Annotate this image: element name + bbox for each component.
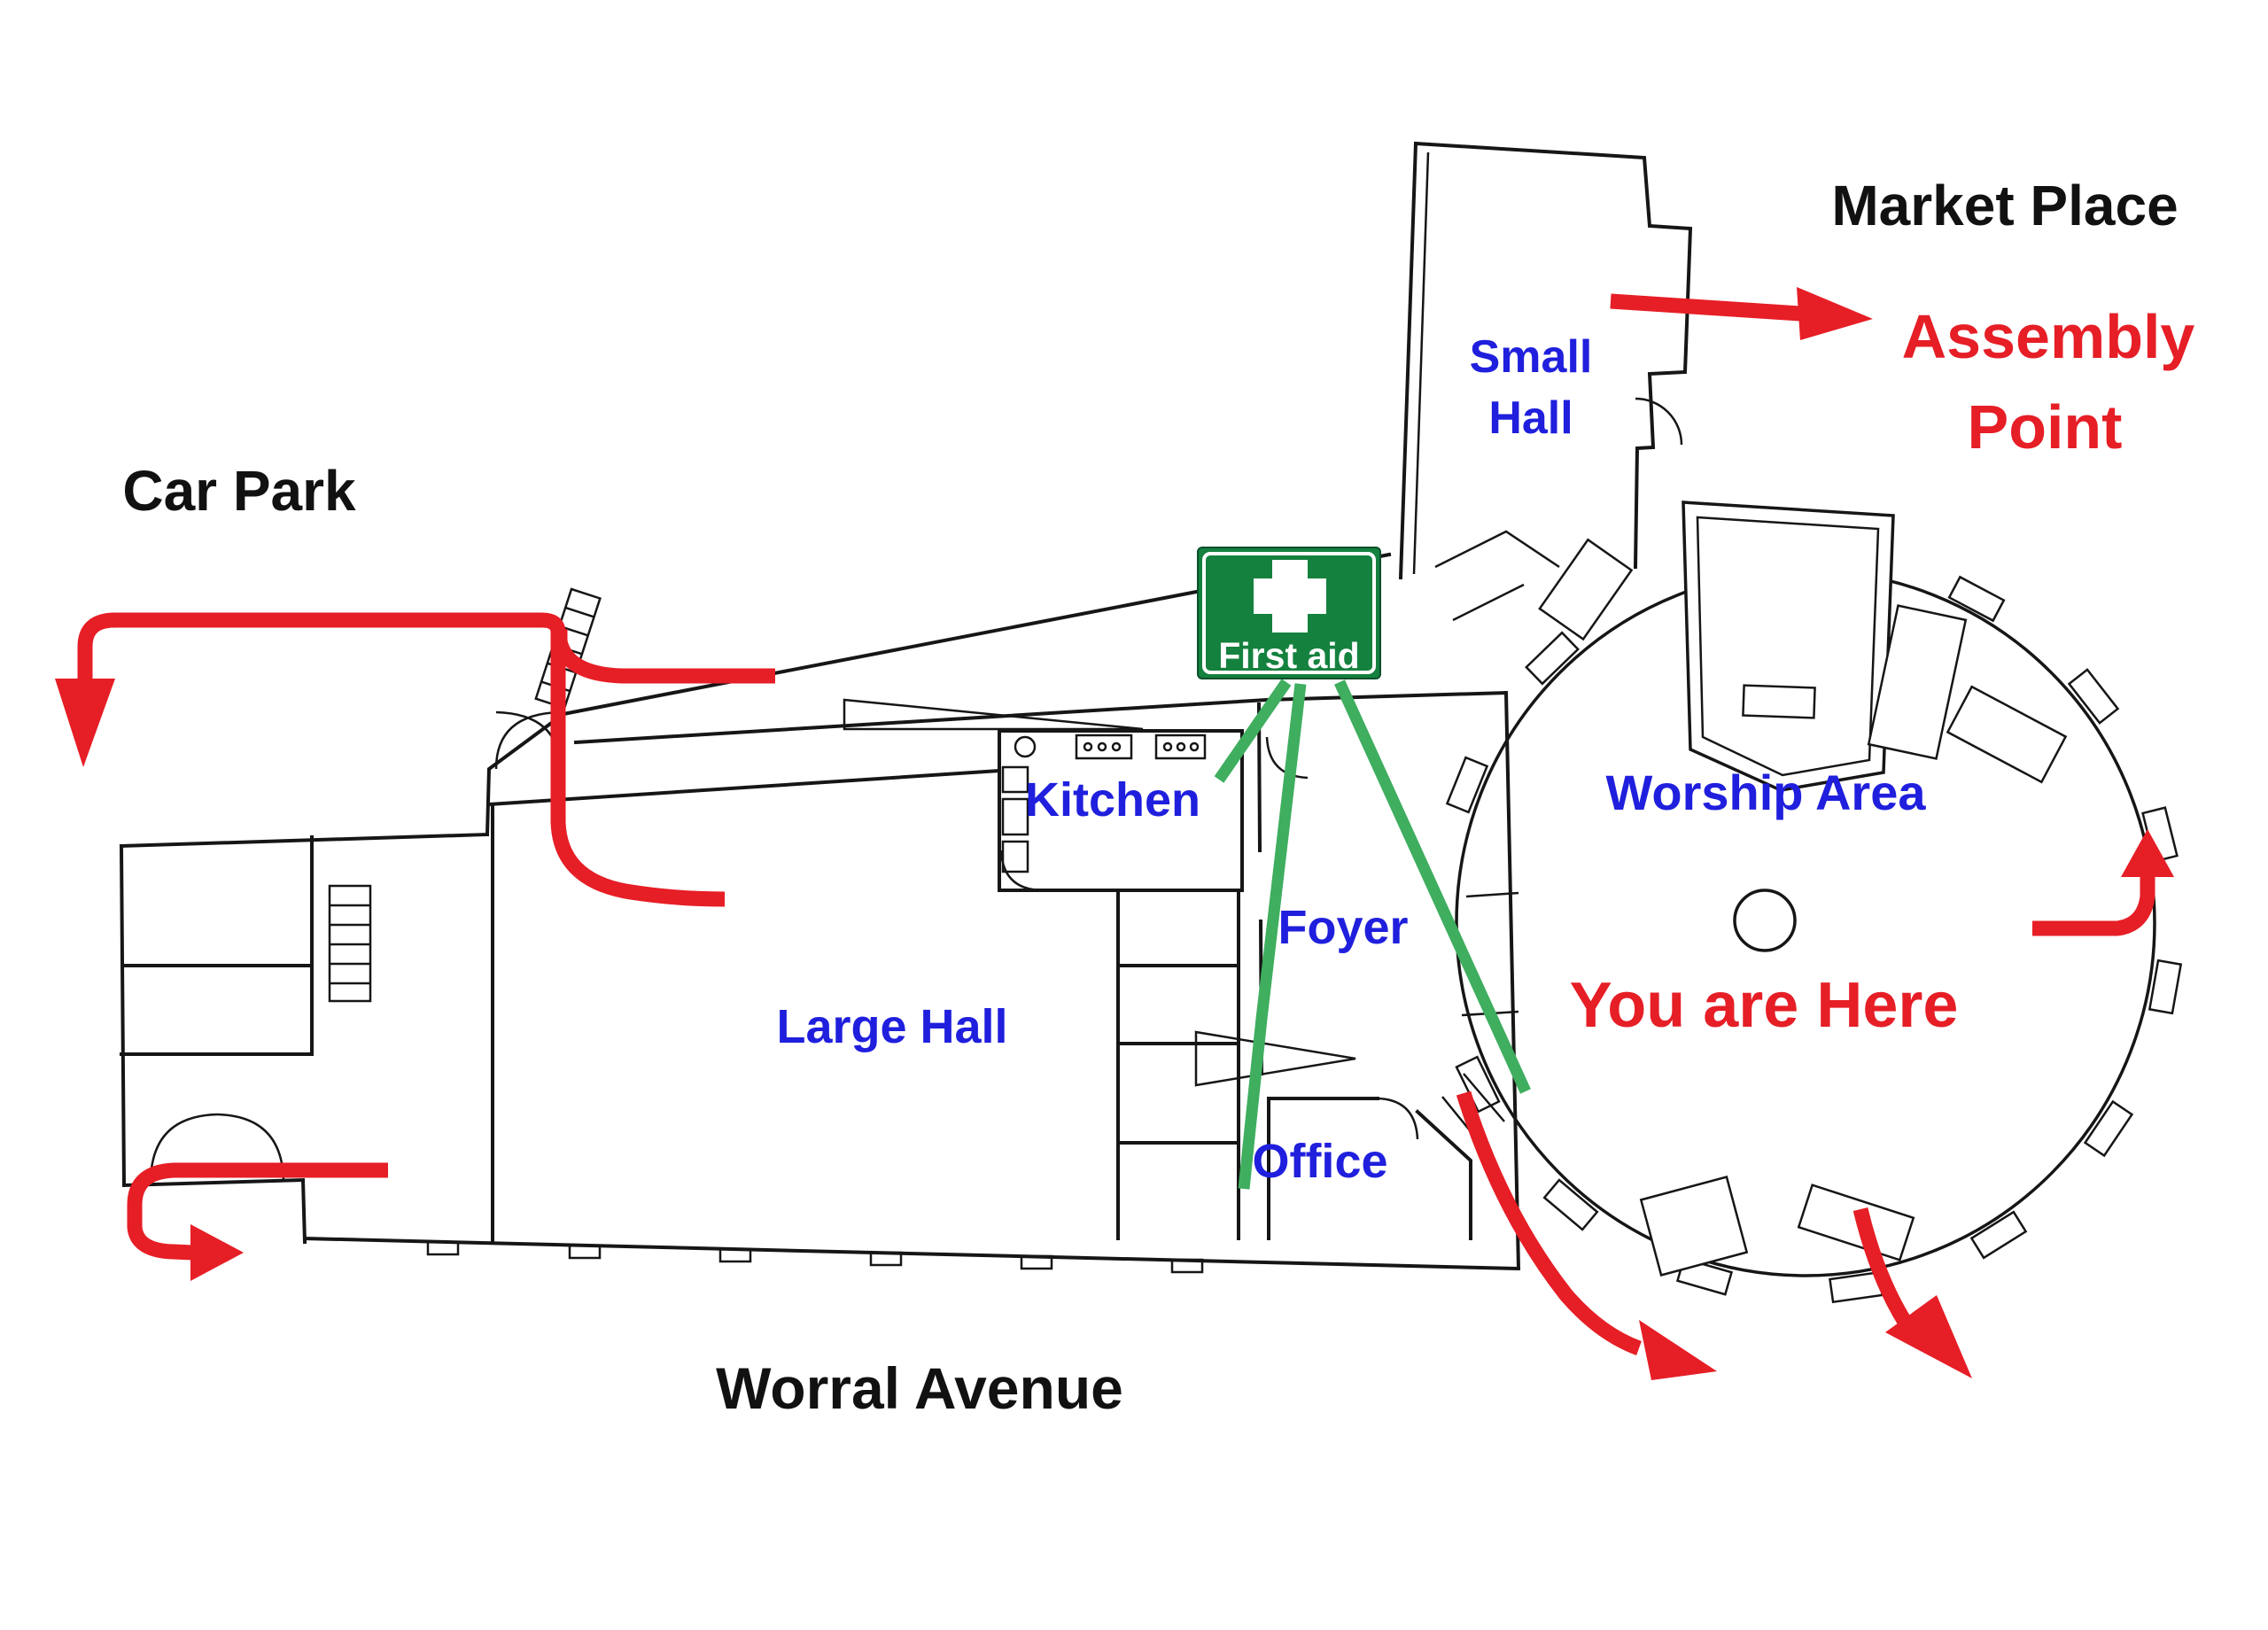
label-office: Office bbox=[1252, 1135, 1387, 1188]
arrowhead-assembly bbox=[1797, 287, 1873, 340]
floor-plan-svg: First aid Market Place Assembly Point Ca… bbox=[0, 0, 2268, 1630]
first-aid-sign-label: First aid bbox=[1218, 635, 1359, 676]
worship-area-room bbox=[1435, 502, 2181, 1302]
label-market-place: Market Place bbox=[1831, 174, 2178, 237]
first-aid-sign: First aid bbox=[1198, 547, 1380, 679]
arrowhead-worral-west bbox=[190, 1224, 244, 1281]
evac-route-worral-west bbox=[135, 1170, 388, 1281]
label-worship-area: Worship Area bbox=[1606, 765, 1927, 820]
evacuation-map: First aid Market Place Assembly Point Ca… bbox=[0, 0, 2268, 1630]
label-worral-avenue: Worral Avenue bbox=[716, 1355, 1123, 1421]
label-you-are-here: You are Here bbox=[1570, 970, 1959, 1041]
label-assembly-point: Point bbox=[1968, 392, 2123, 462]
kitchen-sink bbox=[1015, 737, 1035, 757]
toilets-block bbox=[1118, 891, 1239, 1238]
arrowhead-southwest bbox=[1639, 1320, 1717, 1380]
label-small-hall-1: Small bbox=[1470, 331, 1593, 383]
label-car-park: Car Park bbox=[122, 459, 356, 523]
evac-route-assembly bbox=[1611, 287, 1873, 340]
label-assembly: Assembly bbox=[1902, 302, 2195, 371]
small-hall-door-arc bbox=[1635, 399, 1682, 445]
label-kitchen: Kitchen bbox=[1025, 773, 1200, 827]
arrowhead-car-park bbox=[55, 679, 115, 767]
stage-platform bbox=[1683, 502, 1893, 790]
foyer-ramp-hatch bbox=[1196, 1032, 1355, 1085]
evac-route-car-park bbox=[55, 620, 775, 899]
label-large-hall: Large Hall bbox=[776, 1000, 1007, 1053]
door-arcs bbox=[151, 712, 1417, 1180]
label-small-hall-2: Hall bbox=[1488, 392, 1573, 444]
label-foyer: Foyer bbox=[1278, 901, 1408, 954]
